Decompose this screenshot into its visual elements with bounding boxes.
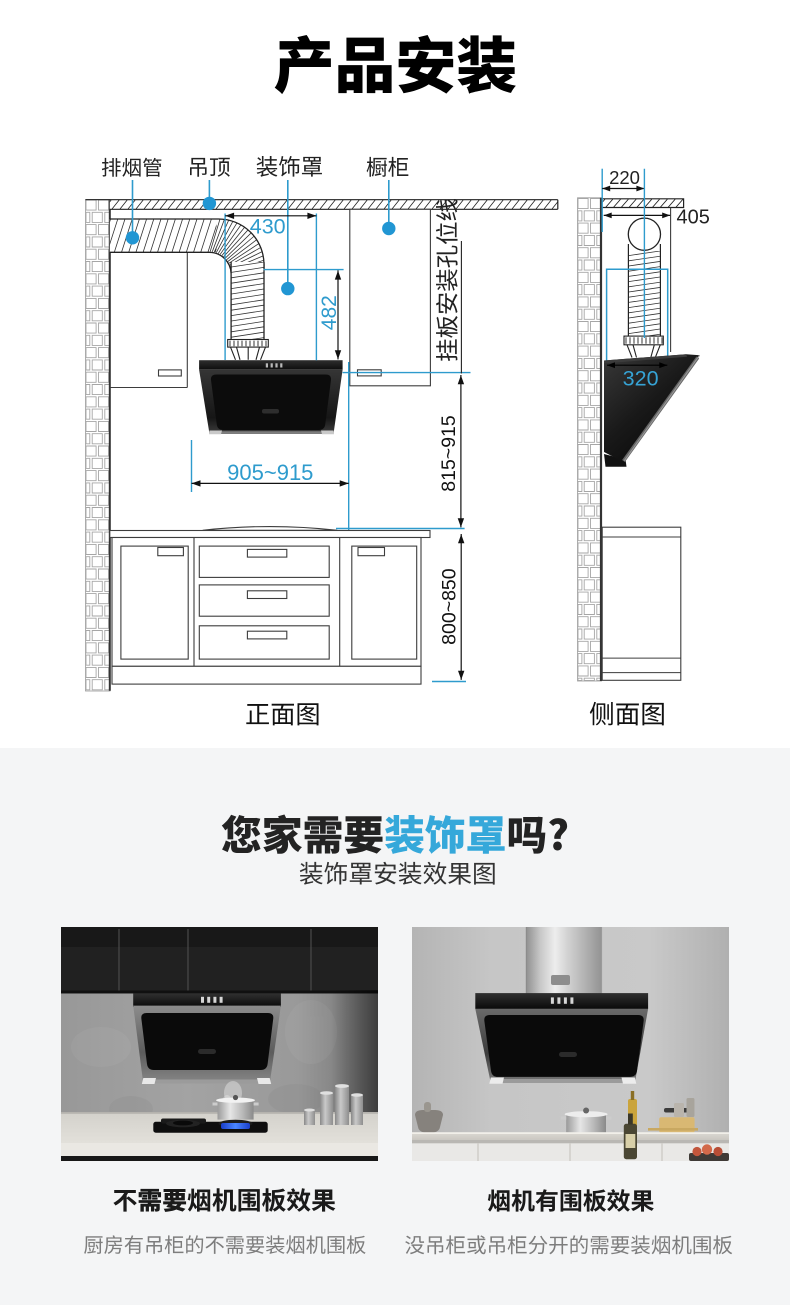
svg-text:405: 405 (677, 207, 710, 229)
svg-text:482: 482 (318, 295, 341, 330)
svg-text:320: 320 (623, 366, 659, 390)
svg-text:220: 220 (609, 167, 640, 188)
svg-text:815~915: 815~915 (438, 415, 460, 492)
svg-text:800~850: 800~850 (438, 568, 460, 645)
svg-text:905~915: 905~915 (227, 460, 313, 485)
svg-text:430: 430 (250, 214, 286, 238)
